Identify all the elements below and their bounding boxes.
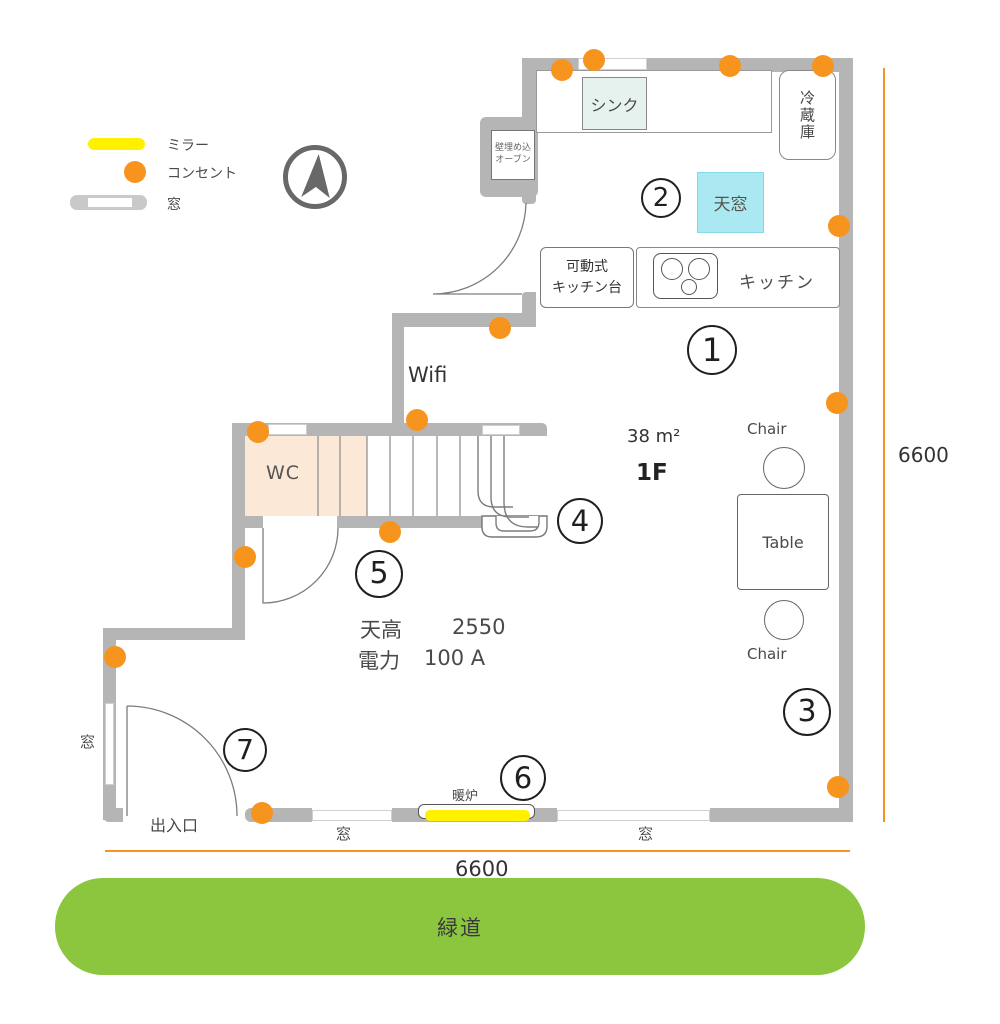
marker-1-number: 1 [702,334,722,366]
outlet-icon [551,59,573,81]
sink: シンク [582,77,647,130]
skylight: 天窓 [697,172,764,233]
wall-upper-left [522,58,536,120]
oven-label-line2: オーブン [495,155,530,167]
wall-wc-left [232,423,245,637]
table-label: Table [762,533,803,552]
legend: ミラー コンセント 窓 [0,0,260,230]
floor-label: 1F [636,460,668,486]
outlet-icon [827,776,849,798]
mobile-counter-label-line1: 可動式 [566,257,608,277]
marker-2-number: 2 [653,185,670,211]
dimension-line-bottom [105,850,850,852]
ceiling-height-label: 天高 [360,614,402,644]
wall-right [839,58,853,822]
sink-label: シンク [590,92,638,116]
wall-stairs-bottom [337,516,547,528]
marker-7-number: 7 [236,736,254,764]
dimension-line-right [883,68,885,822]
compass-arrow [292,152,338,202]
stove-burner-left [661,258,683,280]
wall-lower-left-horizontal [103,628,245,640]
mobile-counter-label-line2: キッチン台 [552,278,622,298]
marker-6: 6 [500,755,546,801]
kitchen-label: キッチン [739,268,815,293]
wall-stub-below-nook [522,195,536,204]
entrance-door-arc [127,706,237,816]
wall-bottom-stub-left [103,808,123,822]
ceiling-height-value: 2550 [452,615,505,639]
mobile-kitchen-counter: 可動式 キッチン台 [540,247,634,308]
area-label: 38 m² [627,426,680,447]
wall-bottom-3 [710,808,853,822]
kitchen-unit: キッチン [636,247,840,308]
outlet-icon [828,215,850,237]
legend-mirror-label: ミラー [167,135,209,155]
greenway-label: 緑道 [437,912,483,942]
fridge-label: 冷蔵庫 [797,90,818,141]
oven-label-line1: 壁埋め込 [495,143,531,155]
mirror-icon [88,138,145,150]
fireplace-label: 暖炉 [452,785,478,804]
wifi-label: Wifi [408,363,447,387]
outlet-icon [104,646,126,668]
compass-north-icon [283,145,347,209]
marker-6-number: 6 [514,764,532,793]
wc-room [245,436,367,516]
legend-outlet-label: コンセント [167,163,237,183]
counter [536,70,772,133]
mirror-bar [425,810,530,821]
marker-5-number: 5 [369,559,388,589]
outlet-icon [251,802,273,824]
oven: 壁埋め込 オーブン [491,130,535,180]
marker-7: 7 [223,728,267,772]
window-icon-inner [88,198,132,207]
power-label: 電力 [358,645,400,675]
chair-bottom-label: Chair [747,645,787,663]
legend-window-label: 窓 [167,194,181,214]
outlet-icon [583,49,605,71]
marker-1: 1 [687,325,737,375]
window-left-wall [105,703,114,785]
marker-5: 5 [355,550,403,598]
stove-burner-small [681,279,697,295]
outlet-icon [812,55,834,77]
outlet-icon [234,546,256,568]
outlet-icon [247,421,269,443]
chair-bottom [764,600,804,640]
outlet-icon [826,392,848,414]
marker-3-number: 3 [797,697,816,727]
skylight-label: 天窓 [714,190,748,215]
entrance-label: 出入口 [150,812,198,836]
marker-4-number: 4 [571,507,589,536]
wall-horizontal-mid [392,313,536,327]
wall-stairs-bottom-left [245,516,263,528]
window-bottom-left [312,810,392,821]
marker-3: 3 [783,688,831,736]
table: Table [737,494,829,590]
stove-burner-right [688,258,710,280]
kitchen-door-arc [433,203,526,294]
window-bottom-right [557,810,710,821]
power-value: 100 A [424,646,485,670]
window-bottom-right-label: 窓 [638,823,653,844]
dimension-right-value: 6600 [898,443,949,467]
outlet-icon [489,317,511,339]
marker-2: 2 [641,178,681,218]
wall-wifi-vertical [392,313,404,435]
greenway: 緑道 [55,878,865,975]
marker-4: 4 [557,498,603,544]
fridge: 冷蔵庫 [779,70,836,160]
window-stairs-top [482,425,520,435]
window-left-label: 窓 [80,731,95,752]
wc-label: WC [266,462,300,484]
outlet-icon [379,521,401,543]
wc-door-arc [263,528,338,603]
outlet-icon [719,55,741,77]
outlet-icon [124,161,146,183]
chair-top-label: Chair [747,420,787,438]
window-wc-top [268,424,307,435]
outlet-icon [406,409,428,431]
chair-top [763,447,805,489]
window-bottom-left-label: 窓 [336,823,351,844]
floor-plan-canvas: ミラー コンセント 窓 シンク 壁埋め込 オーブン 冷蔵庫 天 [0,0,1000,1024]
